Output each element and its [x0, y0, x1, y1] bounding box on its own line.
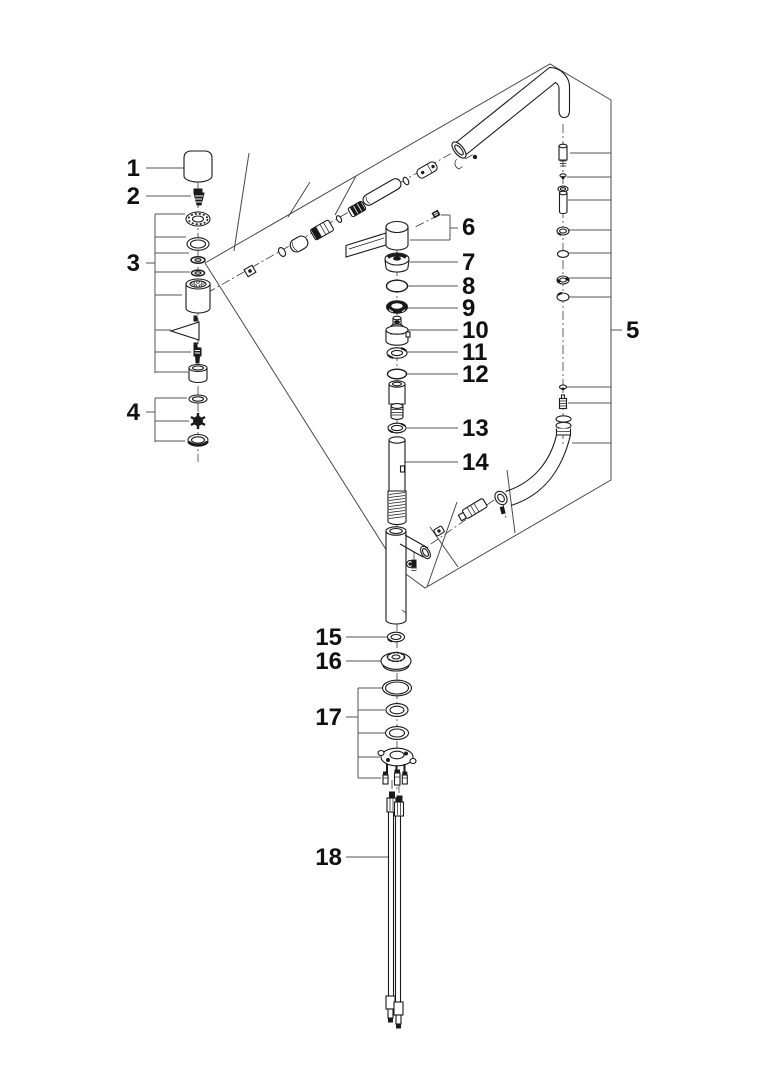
part-aerator-insert — [191, 413, 205, 429]
faucet-body — [386, 527, 432, 624]
part-spray-cone — [171, 316, 199, 348]
part-washer-13 — [388, 423, 406, 433]
part-spray-washer — [191, 257, 205, 263]
part-valve-housing — [389, 381, 405, 420]
part-base-escutcheon — [381, 653, 411, 671]
part-cap-screw — [194, 189, 204, 205]
callout-5: 5 — [626, 317, 639, 344]
part-lever-handle — [346, 210, 440, 257]
part-cartridge — [386, 316, 410, 345]
part-spray-screw — [194, 348, 201, 363]
part-ring-nut — [387, 301, 408, 313]
part-spray-cap — [184, 151, 212, 182]
exploded-diagram-page: 1 2 3 4 5 6 7 8 9 10 11 12 13 14 15 16 1… — [0, 0, 764, 1080]
callout-14: 14 — [462, 449, 489, 476]
part-spray-body — [186, 279, 210, 313]
spout-tube — [449, 67, 569, 169]
part-lock-ring — [388, 632, 405, 642]
part-mounting-oring — [383, 680, 412, 696]
part-o-ring-12 — [388, 369, 407, 379]
part-riser-tube — [388, 437, 406, 525]
callout-15: 15 — [315, 624, 342, 651]
callout-6: 6 — [462, 214, 475, 241]
part-spray-small-ring — [192, 270, 205, 276]
callout-7: 7 — [462, 249, 475, 276]
callout-4: 4 — [127, 399, 141, 426]
spout-elbow — [411, 416, 571, 571]
part-spray-knurled-nut — [186, 212, 210, 226]
part-supply-hoses — [386, 792, 404, 1028]
part-aerator-cup — [188, 435, 208, 446]
callout-13: 13 — [462, 415, 489, 442]
axis-lines — [198, 124, 563, 798]
part-o-ring-8 — [387, 280, 408, 292]
part-mounting-bolts — [383, 770, 407, 785]
part-spacer-ring — [387, 348, 407, 358]
callout-1: 1 — [127, 155, 140, 182]
part-escutcheon-cap — [385, 253, 409, 272]
callout-3: 3 — [127, 250, 140, 277]
callout-2: 2 — [127, 183, 140, 210]
part-spray-ring — [187, 238, 209, 251]
part-mounting-ring-1 — [386, 704, 408, 717]
part-aerator-ring — [189, 395, 207, 403]
callout-17: 17 — [315, 704, 342, 731]
exploded-diagram: 1 2 3 4 5 6 7 8 9 10 11 12 13 14 15 16 1… — [0, 0, 764, 1080]
callout-16: 16 — [315, 648, 342, 675]
callout-18: 18 — [315, 844, 342, 871]
assembly-band-outline — [205, 64, 611, 588]
part-spray-sleeve — [189, 365, 207, 383]
callout-12: 12 — [462, 361, 489, 388]
part-mounting-ring-2 — [386, 727, 409, 740]
